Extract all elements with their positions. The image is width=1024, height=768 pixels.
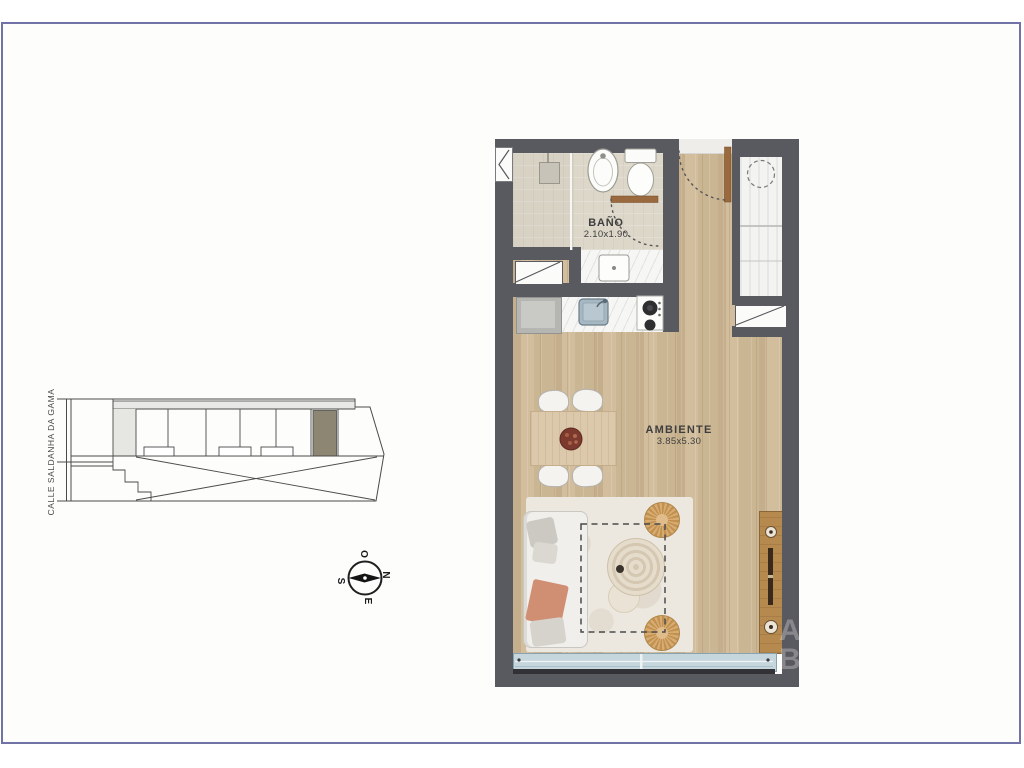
main-room-label: AMBIENTE 3.85x5.30	[627, 424, 731, 448]
wall-right	[782, 139, 799, 687]
entry-threshold	[679, 139, 732, 154]
wall-top	[495, 139, 679, 153]
wall-under-shower	[513, 247, 570, 260]
fridge-top	[521, 301, 555, 328]
wall-bottom	[495, 674, 799, 687]
fridge	[516, 297, 562, 334]
room-name: AMBIENTE	[627, 424, 731, 437]
compass-west: O	[358, 550, 369, 558]
duct-shaft	[495, 147, 513, 182]
balcony-tab	[219, 447, 251, 456]
laundry-closet	[740, 157, 782, 296]
bathroom-dimensions: 2.10x1.90	[561, 230, 651, 241]
balcony-tab	[261, 447, 293, 456]
dining-chair	[571, 463, 604, 488]
pouf-center	[656, 627, 668, 639]
pouf	[644, 615, 680, 651]
highlighted-unit	[313, 411, 337, 457]
wall-left	[495, 139, 513, 687]
building-gray-zone	[113, 409, 136, 456]
street-label: CALLE SALDANHA DA GAMA	[46, 389, 56, 516]
balcony-rail	[513, 669, 775, 674]
wall-laundry-left	[732, 157, 740, 296]
watermark: A B	[778, 617, 802, 674]
dining-table	[530, 411, 617, 466]
compass-north: N	[380, 571, 391, 578]
bathroom-label: BAÑO 2.10x1.90	[561, 217, 651, 241]
dining-chair	[571, 388, 604, 413]
image-frame: CALLE SALDANHA DA GAMA O N S E	[1, 22, 1021, 744]
room-dimensions: 3.85x5.30	[627, 437, 731, 448]
screenshot: CALLE SALDANHA DA GAMA O N S E	[0, 0, 1024, 768]
compass-rose: O N S E	[331, 536, 403, 614]
closet	[515, 261, 563, 285]
table-vase	[616, 565, 624, 573]
sofa-pillow	[529, 617, 566, 647]
bathroom-vanity-counter	[580, 250, 663, 286]
shower-head-icon	[539, 162, 560, 184]
kitchen-counter	[560, 294, 663, 332]
stairs	[113, 456, 151, 501]
compass-east: E	[362, 598, 373, 605]
dining-chair	[537, 463, 569, 488]
bathroom-name: BAÑO	[561, 217, 651, 230]
floor-plan: BAÑO 2.10x1.90 AMBIENTE 3.85x5.30 A B	[495, 139, 799, 687]
closet	[735, 305, 787, 328]
balcony-tab	[144, 447, 174, 456]
compass-pivot	[363, 576, 367, 580]
building-key-plan: CALLE SALDANHA DA GAMA	[43, 382, 393, 524]
wall-under-laundry	[732, 296, 799, 305]
compass-south: S	[335, 578, 346, 585]
watermark-letter: B	[778, 646, 802, 675]
sofa-pillow	[532, 541, 559, 564]
wall-bathroom-right	[663, 139, 679, 332]
watermark-letter: A	[778, 617, 802, 646]
pouf-center	[656, 514, 668, 526]
building-top-strip	[113, 401, 355, 409]
pouf	[644, 502, 680, 538]
wall-above-kitchen	[513, 283, 679, 297]
